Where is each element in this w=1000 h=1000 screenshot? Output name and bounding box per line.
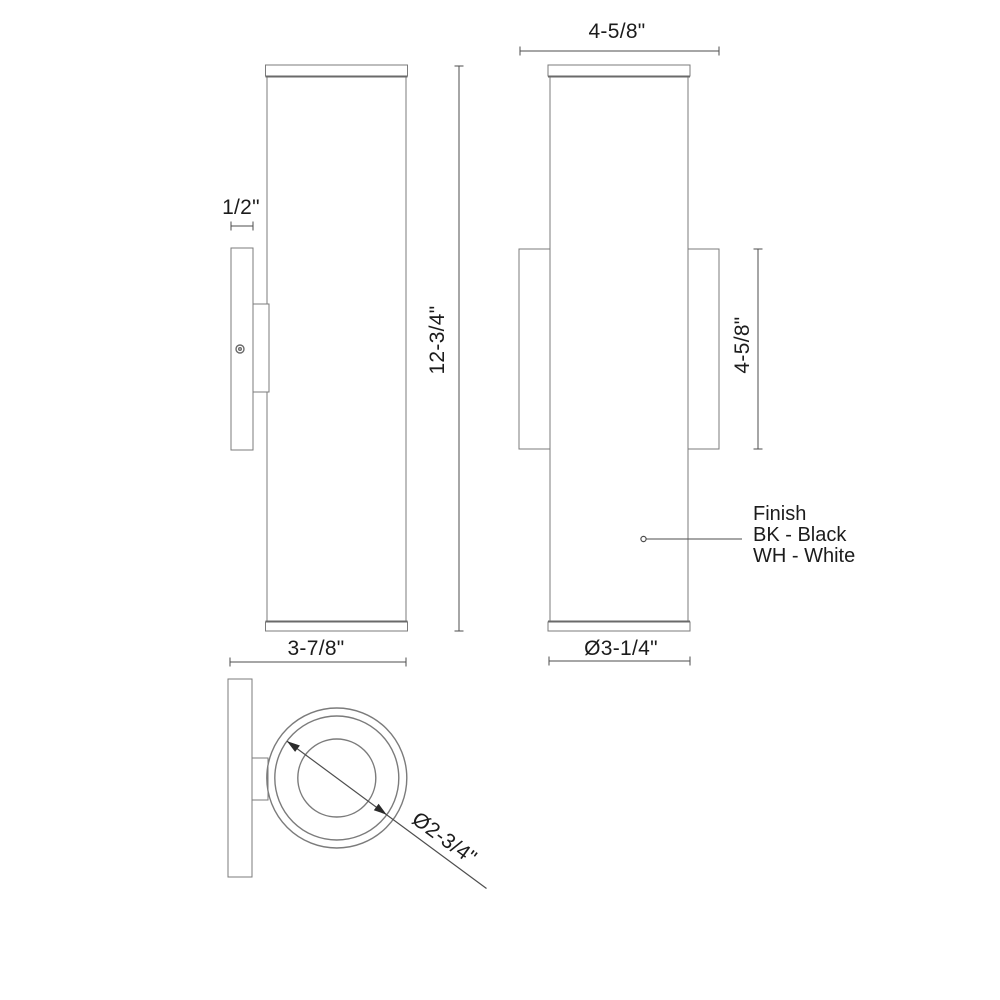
finish-note: Finish BK - Black WH - White — [753, 504, 855, 567]
front-view-body — [550, 76, 688, 622]
dim-fixture-width — [520, 47, 719, 56]
side-view — [231, 65, 408, 631]
top-view — [228, 679, 407, 877]
side-view-mount-bracket — [253, 304, 269, 392]
front-view-top-cap — [548, 65, 690, 76]
label-body-height: 12-3/4" — [426, 305, 450, 374]
label-overall-depth: 3-7/8" — [287, 637, 344, 661]
finish-note-title: Finish — [753, 504, 855, 525]
arrowhead-lower-right — [374, 804, 387, 815]
top-view-mount-bracket — [252, 758, 268, 800]
side-view-bottom-cap — [266, 622, 408, 631]
front-view — [519, 65, 719, 631]
dim-inner-diameter — [287, 741, 487, 888]
side-view-top-cap — [266, 65, 408, 76]
label-plate-depth: 1/2" — [222, 196, 260, 220]
label-body-diameter: Ø3-1/4" — [584, 637, 658, 661]
drawing-linework — [0, 0, 1000, 1000]
side-view-body — [267, 76, 406, 622]
top-view-wall-plate — [228, 679, 252, 877]
finish-note-option-white: WH - White — [753, 546, 855, 567]
dim-plate-depth — [231, 222, 253, 231]
finish-note-option-black: BK - Black — [753, 525, 855, 546]
label-backplate-height: 4-5/8" — [731, 316, 755, 373]
front-view-left-tab — [519, 249, 550, 449]
front-view-right-tab — [688, 249, 719, 449]
side-view-screw — [236, 345, 244, 353]
drawing-canvas: 1/2" 4-5/8" 12-3/4" 4-5/8" 3-7/8" Ø3-1/4… — [0, 0, 1000, 1000]
dim-body-height — [455, 66, 464, 631]
arrowhead-upper-left — [287, 741, 300, 752]
label-fixture-width: 4-5/8" — [588, 20, 645, 44]
front-view-bottom-cap — [548, 622, 690, 631]
